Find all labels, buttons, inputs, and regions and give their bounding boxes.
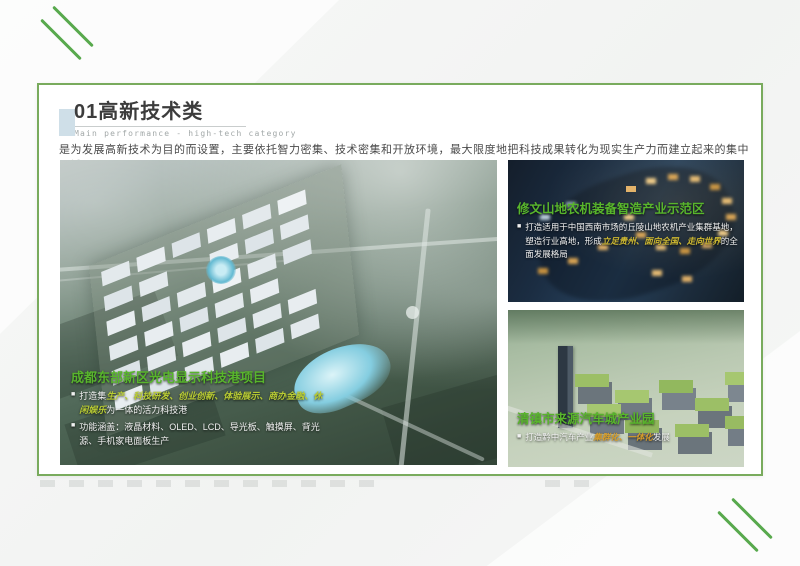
tree-band (508, 310, 744, 344)
green-roofs-cluster (575, 374, 609, 387)
bullet-text: 打造黔中汽车产业集群化、一体化发展 (525, 431, 670, 445)
page-title: 01高新技术类 (74, 99, 297, 125)
project-title: 修文山地农机装备智造产业示范区 (517, 198, 740, 217)
watermark-row (545, 480, 590, 487)
bullet-square-icon: ■ (71, 421, 75, 449)
bullet-text: 打造集生产、科技研发、创业创新、体验展示、商办金融、休闲娱乐为一体的活力科技港 (79, 390, 329, 418)
section-header: 01高新技术类 Main performance - high-tech cat… (59, 99, 297, 138)
project-image-xiuwen: 修文山地农机装备智造产业示范区 ■ 打造适用于中国西南市场的丘陵山地农机产业集群… (508, 160, 744, 302)
watermark-row (40, 480, 385, 487)
bullet-text: 打造适用于中国西南市场的丘陵山地农机产业集群基地，塑造行业高地，形成立足贵州、面… (525, 221, 740, 262)
bullet-square-icon: ■ (71, 390, 75, 418)
buildings-cluster (101, 261, 130, 287)
highlight-text: 立足贵州、面向全国、走向世界 (602, 236, 721, 246)
project-bullet: ■ 功能涵盖：液晶材料、OLED、LCD、导光板、触摸屏、背光源、手机家电面板生… (71, 421, 329, 449)
bullet-square-icon: ■ (517, 221, 521, 262)
bullet-square-icon: ■ (517, 431, 521, 445)
title-underline (74, 126, 246, 127)
bullet-text: 功能涵盖：液晶材料、OLED、LCD、导光板、触摸屏、背光源、手机家电面板生产 (79, 421, 329, 449)
project-bullet: ■ 打造黔中汽车产业集群化、一体化发展 (517, 431, 718, 445)
project-title: 成都东部新区光电显示科技港项目 (71, 367, 329, 386)
project-title: 清镇市来源汽车城产业园 (517, 408, 718, 427)
project-bullet: ■ 打造集生产、科技研发、创业创新、体验展示、商办金融、休闲娱乐为一体的活力科技… (71, 390, 329, 418)
water-feature (206, 256, 236, 284)
roundabout (406, 306, 419, 319)
highlight-text: 集群化、一体化 (593, 432, 653, 442)
project-bullet: ■ 打造适用于中国西南市场的丘陵山地农机产业集群基地，塑造行业高地，形成立足贵州… (517, 221, 740, 262)
project-overlay-xiuwen: 修文山地农机装备智造产业示范区 ■ 打造适用于中国西南市场的丘陵山地农机产业集群… (517, 198, 740, 265)
project-image-chengdu: 成都东部新区光电显示科技港项目 ■ 打造集生产、科技研发、创业创新、体验展示、商… (60, 160, 497, 465)
title-accent-square (59, 109, 75, 136)
page-subtitle: Main performance - high-tech category (74, 129, 297, 138)
project-overlay-qingzhen: 清镇市来源汽车城产业园 ■ 打造黔中汽车产业集群化、一体化发展 (517, 408, 718, 448)
slide-card: 01高新技术类 Main performance - high-tech cat… (37, 83, 763, 476)
project-image-qingzhen: 清镇市来源汽车城产业园 ■ 打造黔中汽车产业集群化、一体化发展 (508, 310, 744, 467)
project-overlay-chengdu: 成都东部新区光电显示科技港项目 ■ 打造集生产、科技研发、创业创新、体验展示、商… (71, 367, 329, 452)
